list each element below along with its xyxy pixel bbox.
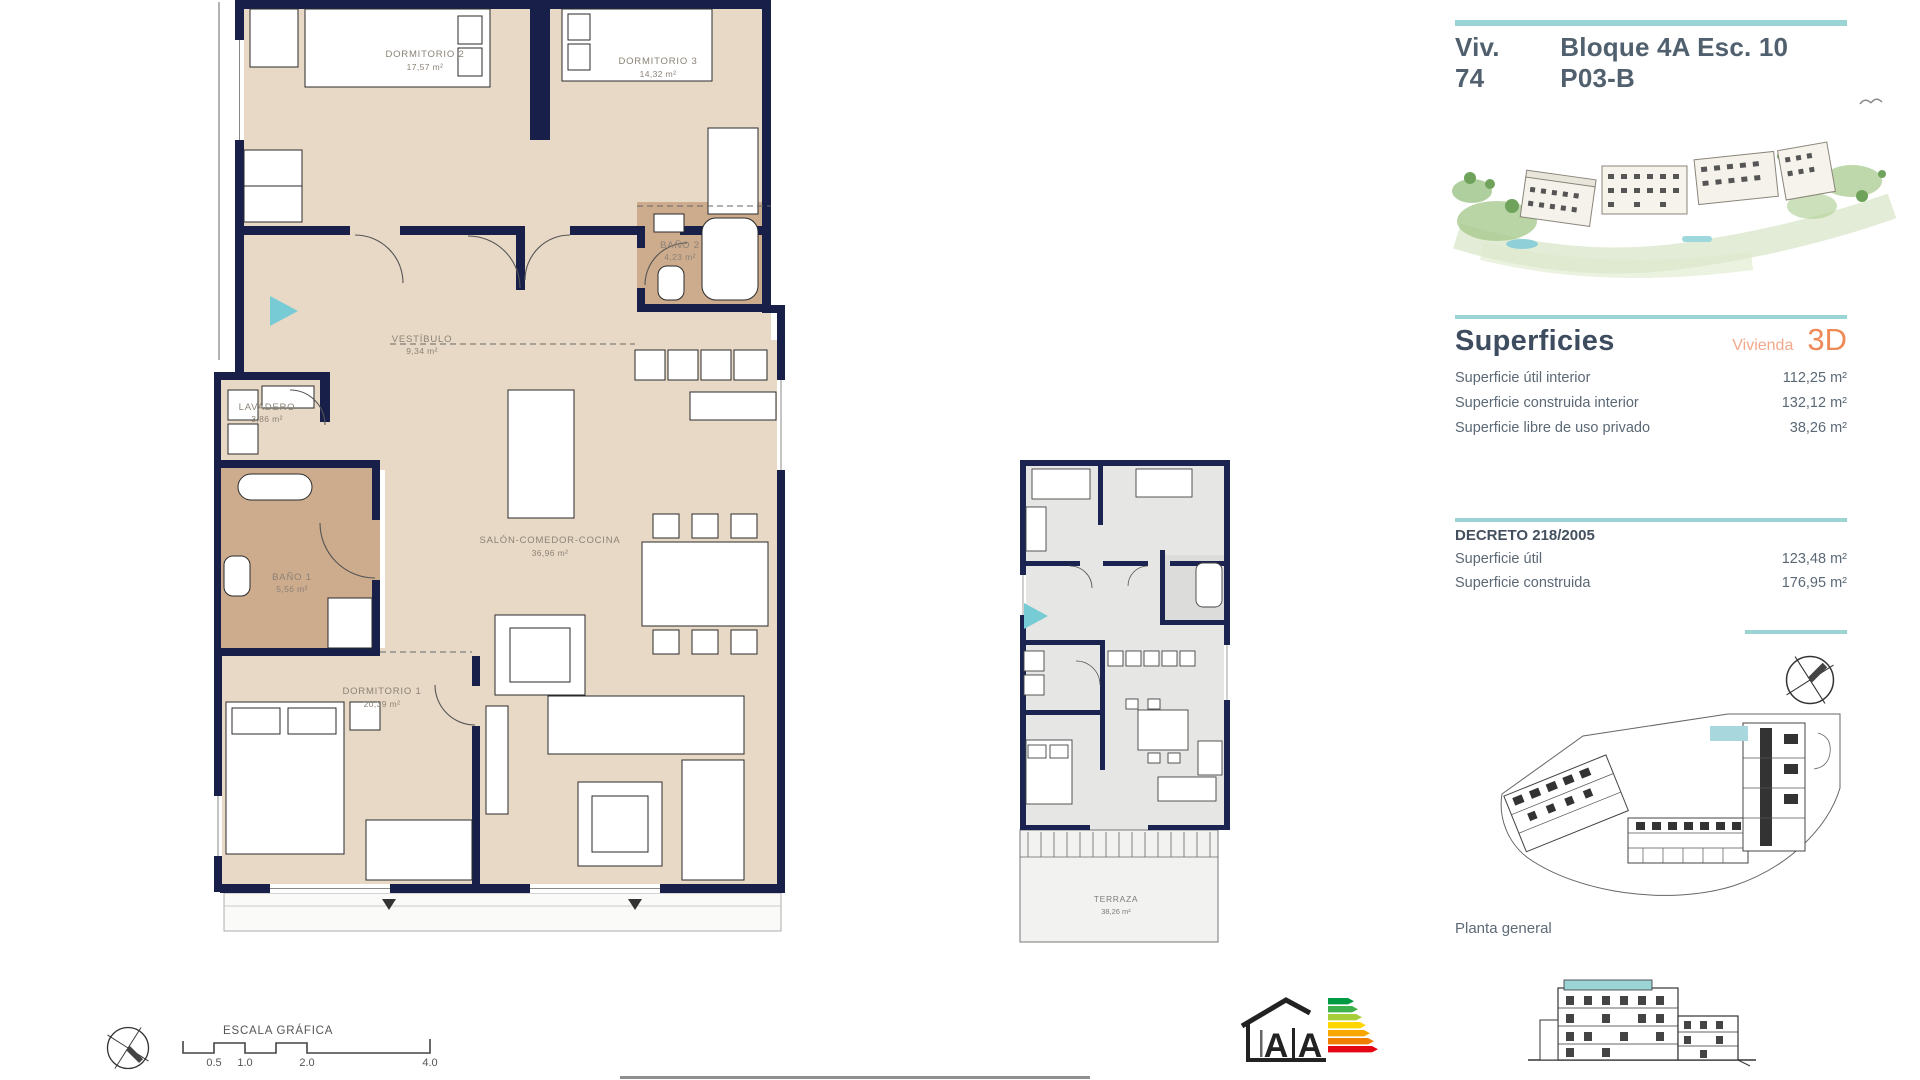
- pool: [1506, 239, 1538, 249]
- plan-sheet: DORMITORIO 2 17,57 m² DORMITORIO 3 14,32…: [0, 0, 1920, 1080]
- room-area: 3,86 m²: [251, 414, 283, 424]
- decreto-heading: DECRETO 218/2005: [1455, 527, 1595, 544]
- buildings: [1520, 142, 1835, 226]
- surface-row: Superficie construida interior 132,12 m²: [1455, 395, 1847, 411]
- surface-row: Superficie útil interior 112,25 m²: [1455, 370, 1847, 386]
- surface-value: 132,12 m²: [1782, 395, 1847, 411]
- room-label: DORMITORIO 1: [342, 686, 421, 697]
- main-floor-plan: DORMITORIO 2 17,57 m² DORMITORIO 3 14,32…: [210, 0, 795, 945]
- energy-letter: A: [1264, 1027, 1289, 1065]
- crop-edge: [620, 1076, 1090, 1079]
- bottom-terrace-slab: [224, 893, 781, 931]
- surface-row: Superficie libre de uso privado 38,26 m²: [1455, 420, 1847, 436]
- superficies-heading: Superficies: [1455, 325, 1615, 358]
- room-label: BAÑO 1: [272, 572, 312, 583]
- decreto-value: 176,95 m²: [1782, 575, 1847, 591]
- unit-number: Viv. 74: [1455, 32, 1530, 94]
- graphic-scale: ESCALA GRÁFICA 0.5 1.0 2.0 4.0: [175, 1025, 465, 1080]
- building-section: [1528, 958, 1756, 1076]
- scale-tick: 2.0: [299, 1057, 314, 1069]
- page-title: Viv. 74 Bloque 4A Esc. 10 P03-B: [1455, 32, 1847, 94]
- decreto-value: 123,48 m²: [1782, 551, 1847, 567]
- scale-tick: 0.5: [206, 1057, 221, 1069]
- decreto-row: Superficie útil 123,48 m²: [1455, 551, 1847, 567]
- room-area: 20,39 m²: [364, 699, 401, 709]
- vivienda-label: Vivienda: [1732, 337, 1793, 355]
- room-label: DORMITORIO 3: [618, 56, 697, 67]
- decreto-label: Superficie útil: [1455, 551, 1542, 567]
- terrace-label: TERRAZA: [1094, 894, 1139, 904]
- scale-title: ESCALA GRÁFICA: [223, 1025, 333, 1037]
- room-label: VESTÍBULO: [392, 334, 453, 345]
- room-label: SALÓN-COMEDOR-COCINA: [479, 535, 620, 546]
- room-area: 4,23 m²: [664, 252, 696, 262]
- site-block-middle: [1628, 818, 1748, 863]
- surface-value: 38,26 m²: [1790, 420, 1847, 436]
- 3d-label: 3D: [1807, 322, 1847, 358]
- pool: [1682, 236, 1712, 242]
- surface-label: Superficie útil interior: [1455, 370, 1590, 386]
- room-label: BAÑO 2: [660, 240, 700, 251]
- teal-divider-short: [1745, 630, 1847, 634]
- site-block-right: [1743, 723, 1805, 851]
- surface-value: 112,25 m²: [1783, 370, 1847, 386]
- decreto-row: Superficie construida 176,95 m²: [1455, 575, 1847, 591]
- room-label: DORMITORIO 2: [385, 49, 464, 60]
- surface-label: Superficie construida interior: [1455, 395, 1639, 411]
- room-label: LAVADERO: [239, 402, 296, 413]
- energy-letter: A: [1298, 1027, 1323, 1065]
- site-plan: [1488, 698, 1846, 910]
- room-area: 17,57 m²: [407, 62, 444, 72]
- block-reference: Bloque 4A Esc. 10 P03-B: [1560, 32, 1847, 94]
- decreto-label: Superficie construida: [1455, 575, 1590, 591]
- mini-floor-plan: TERRAZA 38,26 m²: [1008, 455, 1238, 950]
- room-area: 9,34 m²: [406, 346, 438, 356]
- scale-tick: 1.0: [237, 1057, 252, 1069]
- bird-icon: [1860, 99, 1882, 104]
- energy-scale-bars: [1328, 998, 1378, 1052]
- room-area: 5,56 m²: [276, 584, 308, 594]
- room-area: 36,96 m²: [532, 548, 569, 558]
- teal-divider-decreto: [1455, 518, 1847, 522]
- teal-divider-top: [1455, 20, 1847, 26]
- building-illustration: [1452, 86, 1902, 291]
- scale-tick: 4.0: [422, 1057, 437, 1069]
- compass-icon: [100, 1020, 156, 1076]
- site-plan-caption: Planta general: [1455, 920, 1552, 937]
- highlighted-unit: [1710, 726, 1748, 741]
- teal-divider-superficies: [1455, 315, 1847, 319]
- energy-rating-icon: A A: [1240, 990, 1390, 1070]
- surface-label: Superficie libre de uso privado: [1455, 420, 1650, 436]
- room-area: 14,32 m²: [640, 69, 677, 79]
- terrace-area: 38,26 m²: [1101, 907, 1131, 916]
- superficies-header: Superficies Vivienda 3D: [1455, 322, 1847, 358]
